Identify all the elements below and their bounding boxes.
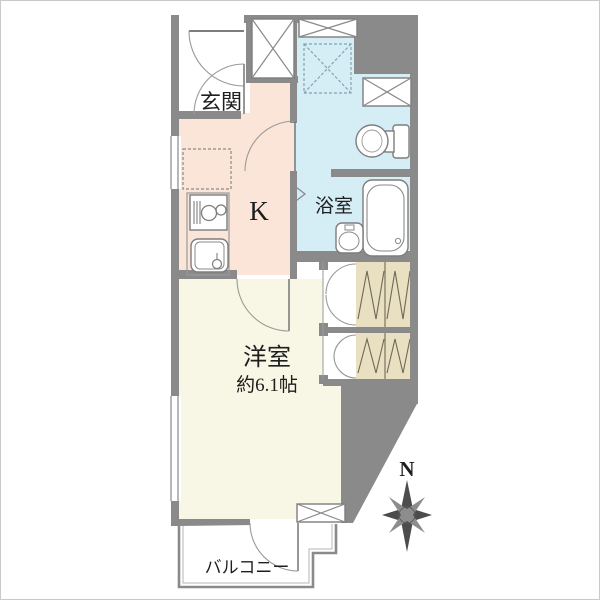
corner-shaft-block [354, 19, 418, 74]
stove [190, 195, 227, 230]
balcony-wall-xbox [297, 504, 345, 522]
compass-north-label: N [399, 457, 414, 481]
western-room-label: 洋室 [243, 344, 291, 371]
pipe-space-xbox [363, 78, 411, 106]
entry-closet-xbox [252, 19, 294, 78]
kitchen-hall-floor [250, 83, 294, 115]
toilet [356, 125, 409, 158]
wall-closet-divider [323, 327, 411, 333]
genkan-label: 玄関 [200, 90, 242, 114]
bath-sink [336, 223, 363, 253]
wall-closet-bottom [323, 379, 418, 386]
wall-left-middle [171, 189, 179, 396]
balcony [179, 524, 336, 587]
floor-plan-image: 玄関 K 浴室 洋室 約6.1帖 バルコニー N [0, 0, 600, 600]
kitchen-label: K [249, 196, 269, 226]
bathtub [363, 180, 408, 256]
closet-lower-fill [356, 333, 410, 379]
western-room-area-label: 約6.1帖 [236, 374, 298, 396]
top-wall-xbox [299, 19, 357, 37]
wall-washroom-bathroom [331, 169, 418, 177]
closet-upper-fill [356, 262, 410, 327]
wall-right [410, 15, 418, 404]
bathroom-label: 浴室 [315, 195, 353, 217]
wall-room-bottom [175, 519, 250, 526]
western-room-floor [179, 279, 341, 519]
balcony-railing-outer [179, 524, 336, 587]
compass: N [382, 457, 432, 552]
balcony-label: バルコニー [205, 558, 290, 577]
kitchen-sink [191, 239, 228, 272]
floor-plan-canvas: 玄関 K 浴室 洋室 約6.1帖 バルコニー N [1, 1, 600, 601]
